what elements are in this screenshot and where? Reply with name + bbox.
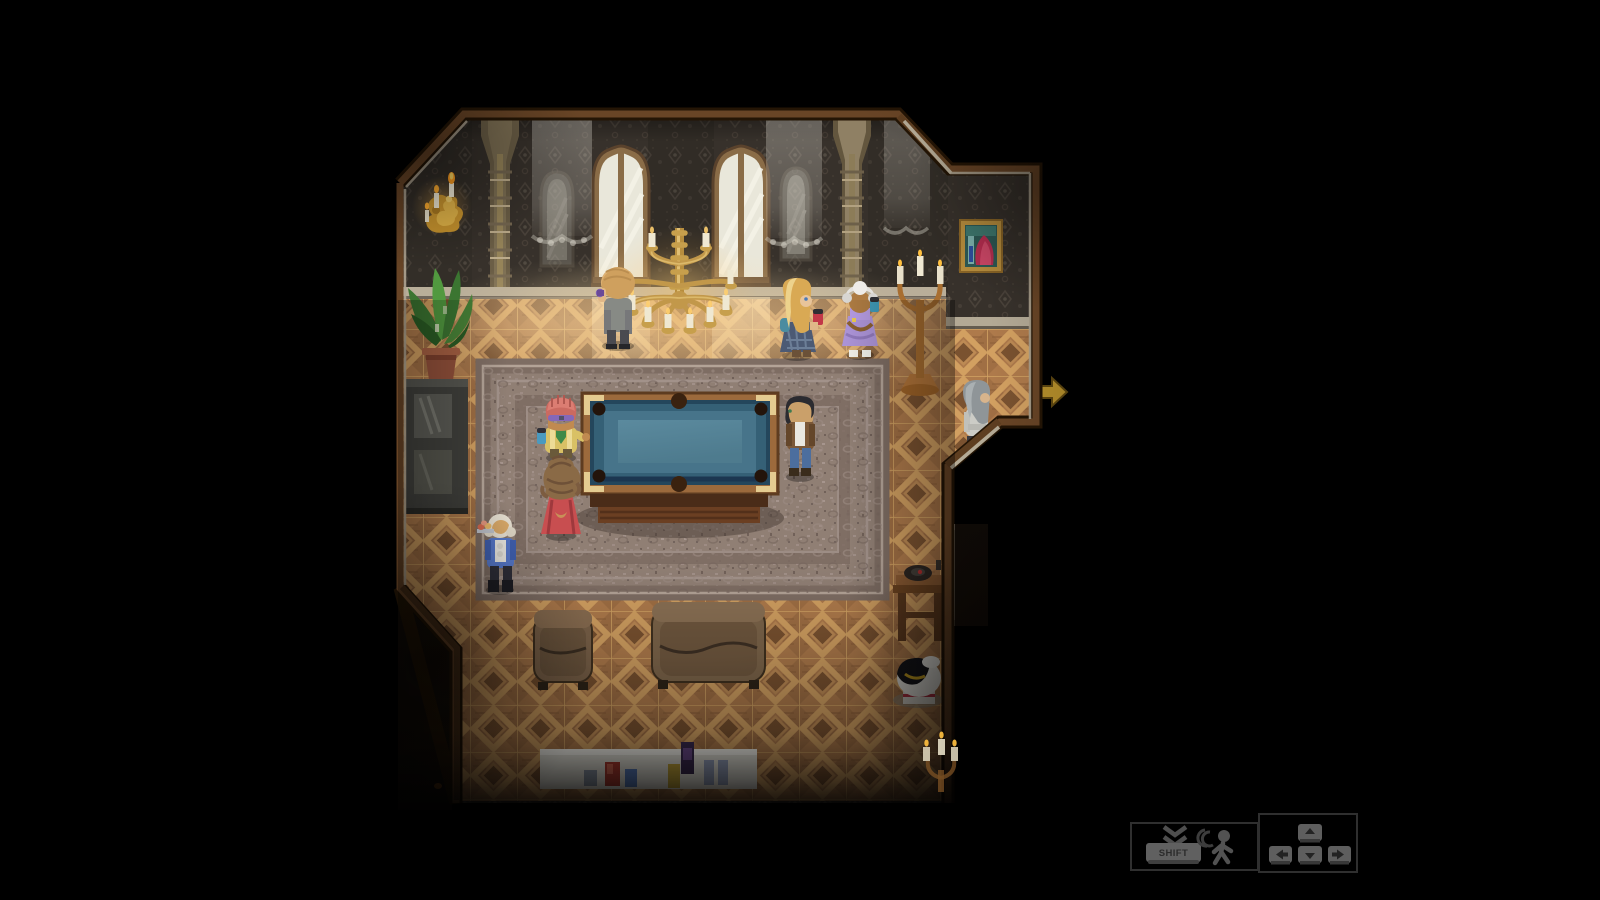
svg-text:SHIFT: SHIFT bbox=[1159, 848, 1188, 859]
